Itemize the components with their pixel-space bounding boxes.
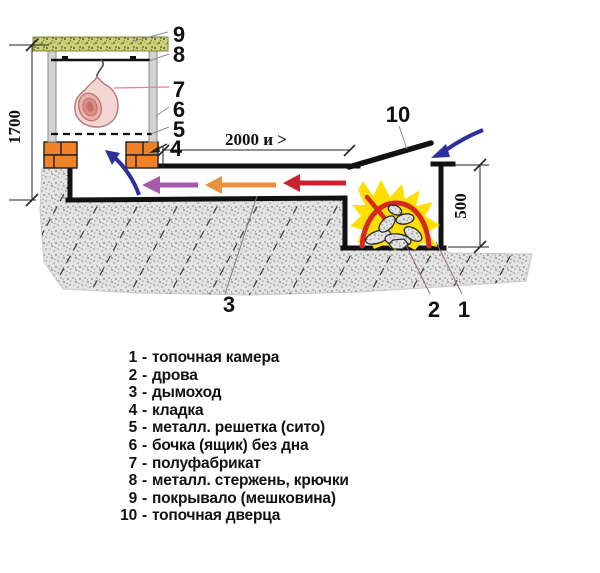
callout-1: 1 [458,297,470,322]
dimension-depth-500: 500 [448,159,489,253]
legend-item-number: 6 [110,437,137,455]
legend-item: 9 - покрывало (мешковина) [110,490,349,508]
brick-pillars [44,142,158,168]
legend-item: 3 - дымоход [110,384,349,402]
legend-item-dash: - [142,367,147,385]
legend-item: 6 - бочка (ящик) без дна [110,437,349,455]
legend-item-label: кладка [152,402,203,420]
legend-item: 2 - дрова [110,367,349,385]
legend-item-number: 5 [110,419,137,437]
legend-item-number: 1 [110,349,137,367]
callout-4: 4 [170,136,183,161]
legend-item-dash: - [142,472,147,490]
legend-item-number: 7 [110,455,137,473]
legend-item-number: 10 [110,507,137,525]
legend-item-dash: - [142,384,147,402]
legend-item-dash: - [142,402,147,420]
legend-item-label: металл. стержень, крючки [152,472,349,490]
legend-item-label: топочная камера [152,349,279,367]
smoke-arrow-hot [283,174,346,192]
dimension-depth-label: 500 [451,193,470,219]
legend-item-dash: - [142,419,147,437]
firebox-door [349,143,431,167]
legend-item-label: бочка (ящик) без дна [152,437,308,455]
dimension-length-2000: 2000 и > [158,130,355,168]
dimension-length-label: 2000 и > [225,130,287,149]
legend-item: 4 - кладка [110,402,349,420]
legend-item-dash: - [142,437,147,455]
legend-item: 8 - металл. стержень, крючки [110,472,349,490]
callout-8: 8 [173,42,185,67]
callout-10: 10 [386,102,410,127]
legend-item-label: дрова [152,367,198,385]
legend-item: 1 - топочная камера [110,349,349,367]
legend-item-dash: - [142,455,147,473]
legend-item-label: топочная дверца [152,507,280,525]
callout-3: 3 [223,292,235,317]
legend-item-number: 2 [110,367,137,385]
metal-rod [51,56,150,81]
callout-2: 2 [428,297,440,322]
legend-item-number: 8 [110,472,137,490]
legend-item-dash: - [142,507,147,525]
legend-item: 5 - металл. решетка (сито) [110,419,349,437]
legend-item-dash: - [142,349,147,367]
legend-item-number: 4 [110,402,137,420]
burlap-cover [33,37,168,51]
legend: 1 - топочная камера 2 - дрова 3 - дымохо… [110,349,349,525]
legend-item-label: полуфабрикат [152,455,261,473]
legend-item-label: металл. решетка (сито) [152,419,325,437]
hanging-meat [75,77,118,127]
legend-item-dash: - [142,490,147,508]
air-intake-arrow [431,130,483,158]
legend-item: 10 - топочная дверца [110,507,349,525]
legend-item: 7 - полуфабрикат [110,455,349,473]
smoke-arrow-cool [142,176,198,194]
legend-item-number: 9 [110,490,137,508]
legend-item-label: дымоход [152,384,221,402]
smokehouse-scheme-page: 1700 2000 и > 500 [0,0,600,573]
legend-item-label: покрывало (мешковина) [152,490,336,508]
smokehouse-diagram: 1700 2000 и > 500 [0,0,600,340]
legend-item-number: 3 [110,384,137,402]
dimension-height-label: 1700 [5,110,24,144]
smoke-arrow-warm [205,176,276,194]
